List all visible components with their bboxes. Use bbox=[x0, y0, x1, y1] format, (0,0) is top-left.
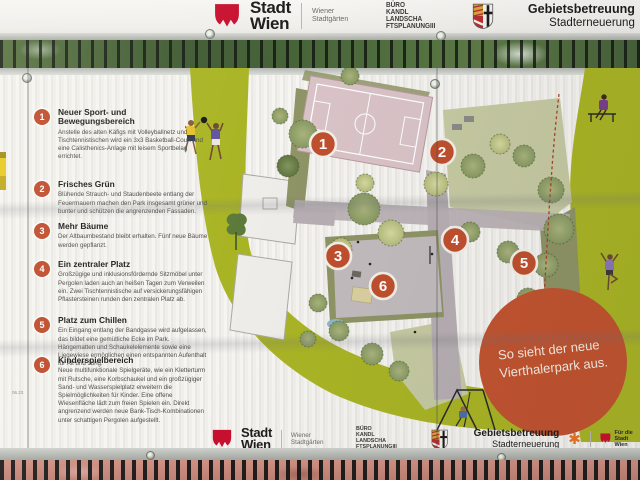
item-number-badge: 4 bbox=[34, 261, 50, 277]
fuer-die-stadt-wien-logo: Für die Stadt Wien bbox=[600, 430, 640, 448]
fence-grid bbox=[0, 40, 640, 68]
list-item: 3 Mehr Bäume Der Altbaumbestand bleibt e… bbox=[34, 222, 210, 250]
item-number-badge: 1 bbox=[34, 109, 50, 125]
wiener-stadtgaerten-label: Wiener Stadtgärten bbox=[312, 8, 348, 24]
marker-4-label: 4 bbox=[451, 232, 460, 249]
gebietsbetreuung-logo: Gebietsbetreuung Stadterneuerung bbox=[528, 3, 635, 28]
divider bbox=[301, 3, 302, 29]
item-title: Ein zentraler Platz bbox=[58, 260, 176, 269]
district-coat-of-arms-icon bbox=[472, 3, 494, 29]
list-item: 6 Kinderspielbereich Neue multifunktiona… bbox=[34, 356, 210, 425]
upper-banner-strip: Stadt Wien Wiener Stadtgärten BÜRO KANDL… bbox=[0, 0, 640, 40]
item-title: Frisches Grün bbox=[58, 180, 176, 189]
bolt bbox=[146, 451, 155, 460]
item-title: Mehr Bäume bbox=[58, 222, 176, 231]
plan-corner-note: 06.23 bbox=[12, 390, 23, 395]
gebietsbetreuung-logo: Gebietsbetreuung Stadterneuerung bbox=[474, 429, 560, 449]
eyelet bbox=[436, 31, 446, 40]
fence-gap-background bbox=[0, 40, 640, 68]
wiener-stadtgaerten-label: Wiener Stadtgärten bbox=[291, 432, 324, 446]
item-number-badge: 6 bbox=[34, 357, 50, 373]
item-title: Kinderspielbereich bbox=[58, 356, 176, 365]
stadt-wien-wordmark: Stadt Wien bbox=[250, 0, 291, 31]
buero-kandl-logo: BÜRO KANDL LANDSCHA FTSPLANUNGIII bbox=[386, 2, 435, 30]
item-body: Großzügige und inklusionsfördernde Sitzm… bbox=[58, 271, 208, 304]
main-banner: 1 2 3 4 5 6 So sieht der neue Vierthaler… bbox=[0, 68, 640, 460]
yellow-sign-edge bbox=[0, 152, 6, 190]
fence-bars bbox=[0, 460, 640, 480]
fence-wire bbox=[27, 68, 29, 460]
stadt-wien-shield-icon bbox=[214, 4, 240, 28]
divider bbox=[281, 430, 282, 448]
fence-wire bbox=[436, 68, 438, 460]
list-item: 2 Frisches Grün Blühende Strauch- und St… bbox=[34, 180, 210, 216]
divider bbox=[590, 431, 591, 447]
badge-circle: So sieht der neue Vierthalerpark aus. bbox=[479, 288, 627, 436]
gebietsbetreuung-star-icon: ✱ bbox=[568, 432, 581, 447]
list-item: 1 Neuer Sport- und Bewegungsbereich Anst… bbox=[34, 108, 210, 162]
item-title: Platz zum Chillen bbox=[58, 316, 176, 325]
stadt-wien-shield-icon bbox=[600, 433, 611, 444]
marker-6-label: 6 bbox=[379, 278, 387, 295]
stadt-wien-shield-icon bbox=[212, 429, 232, 449]
list-item: 4 Ein zentraler Platz Großzügige und ink… bbox=[34, 260, 210, 304]
item-body: Blühende Strauch- und Staudenbeete entla… bbox=[58, 191, 208, 216]
eyelet bbox=[205, 29, 215, 39]
item-body: Anstelle des alten Käfigs mit Volleyball… bbox=[58, 129, 208, 162]
item-body: Neue multifunktionale Spielgeräte, wie e… bbox=[58, 367, 208, 424]
marker-5-label: 5 bbox=[520, 255, 528, 272]
item-title: Neuer Sport- und Bewegungsbereich bbox=[58, 108, 176, 127]
banner-hem bbox=[0, 33, 640, 40]
photo-of-park-plan-banner: Stadt Wien Wiener Stadtgärten BÜRO KANDL… bbox=[0, 0, 640, 480]
marker-2-label: 2 bbox=[438, 144, 446, 161]
item-number-badge: 2 bbox=[34, 181, 50, 197]
item-body: Der Altbaumbestand bleibt erhalten. Fünf… bbox=[58, 233, 208, 249]
bottom-fence bbox=[0, 460, 640, 480]
item-number-badge: 5 bbox=[34, 317, 50, 333]
site-plan-map: 1 2 3 4 5 6 So sieht der neue Vierthaler… bbox=[185, 68, 640, 460]
stadt-wien-line2: Wien bbox=[250, 16, 291, 32]
marker-1-label: 1 bbox=[319, 136, 327, 153]
item-number-badge: 3 bbox=[34, 223, 50, 239]
marker-3-label: 3 bbox=[334, 248, 342, 265]
